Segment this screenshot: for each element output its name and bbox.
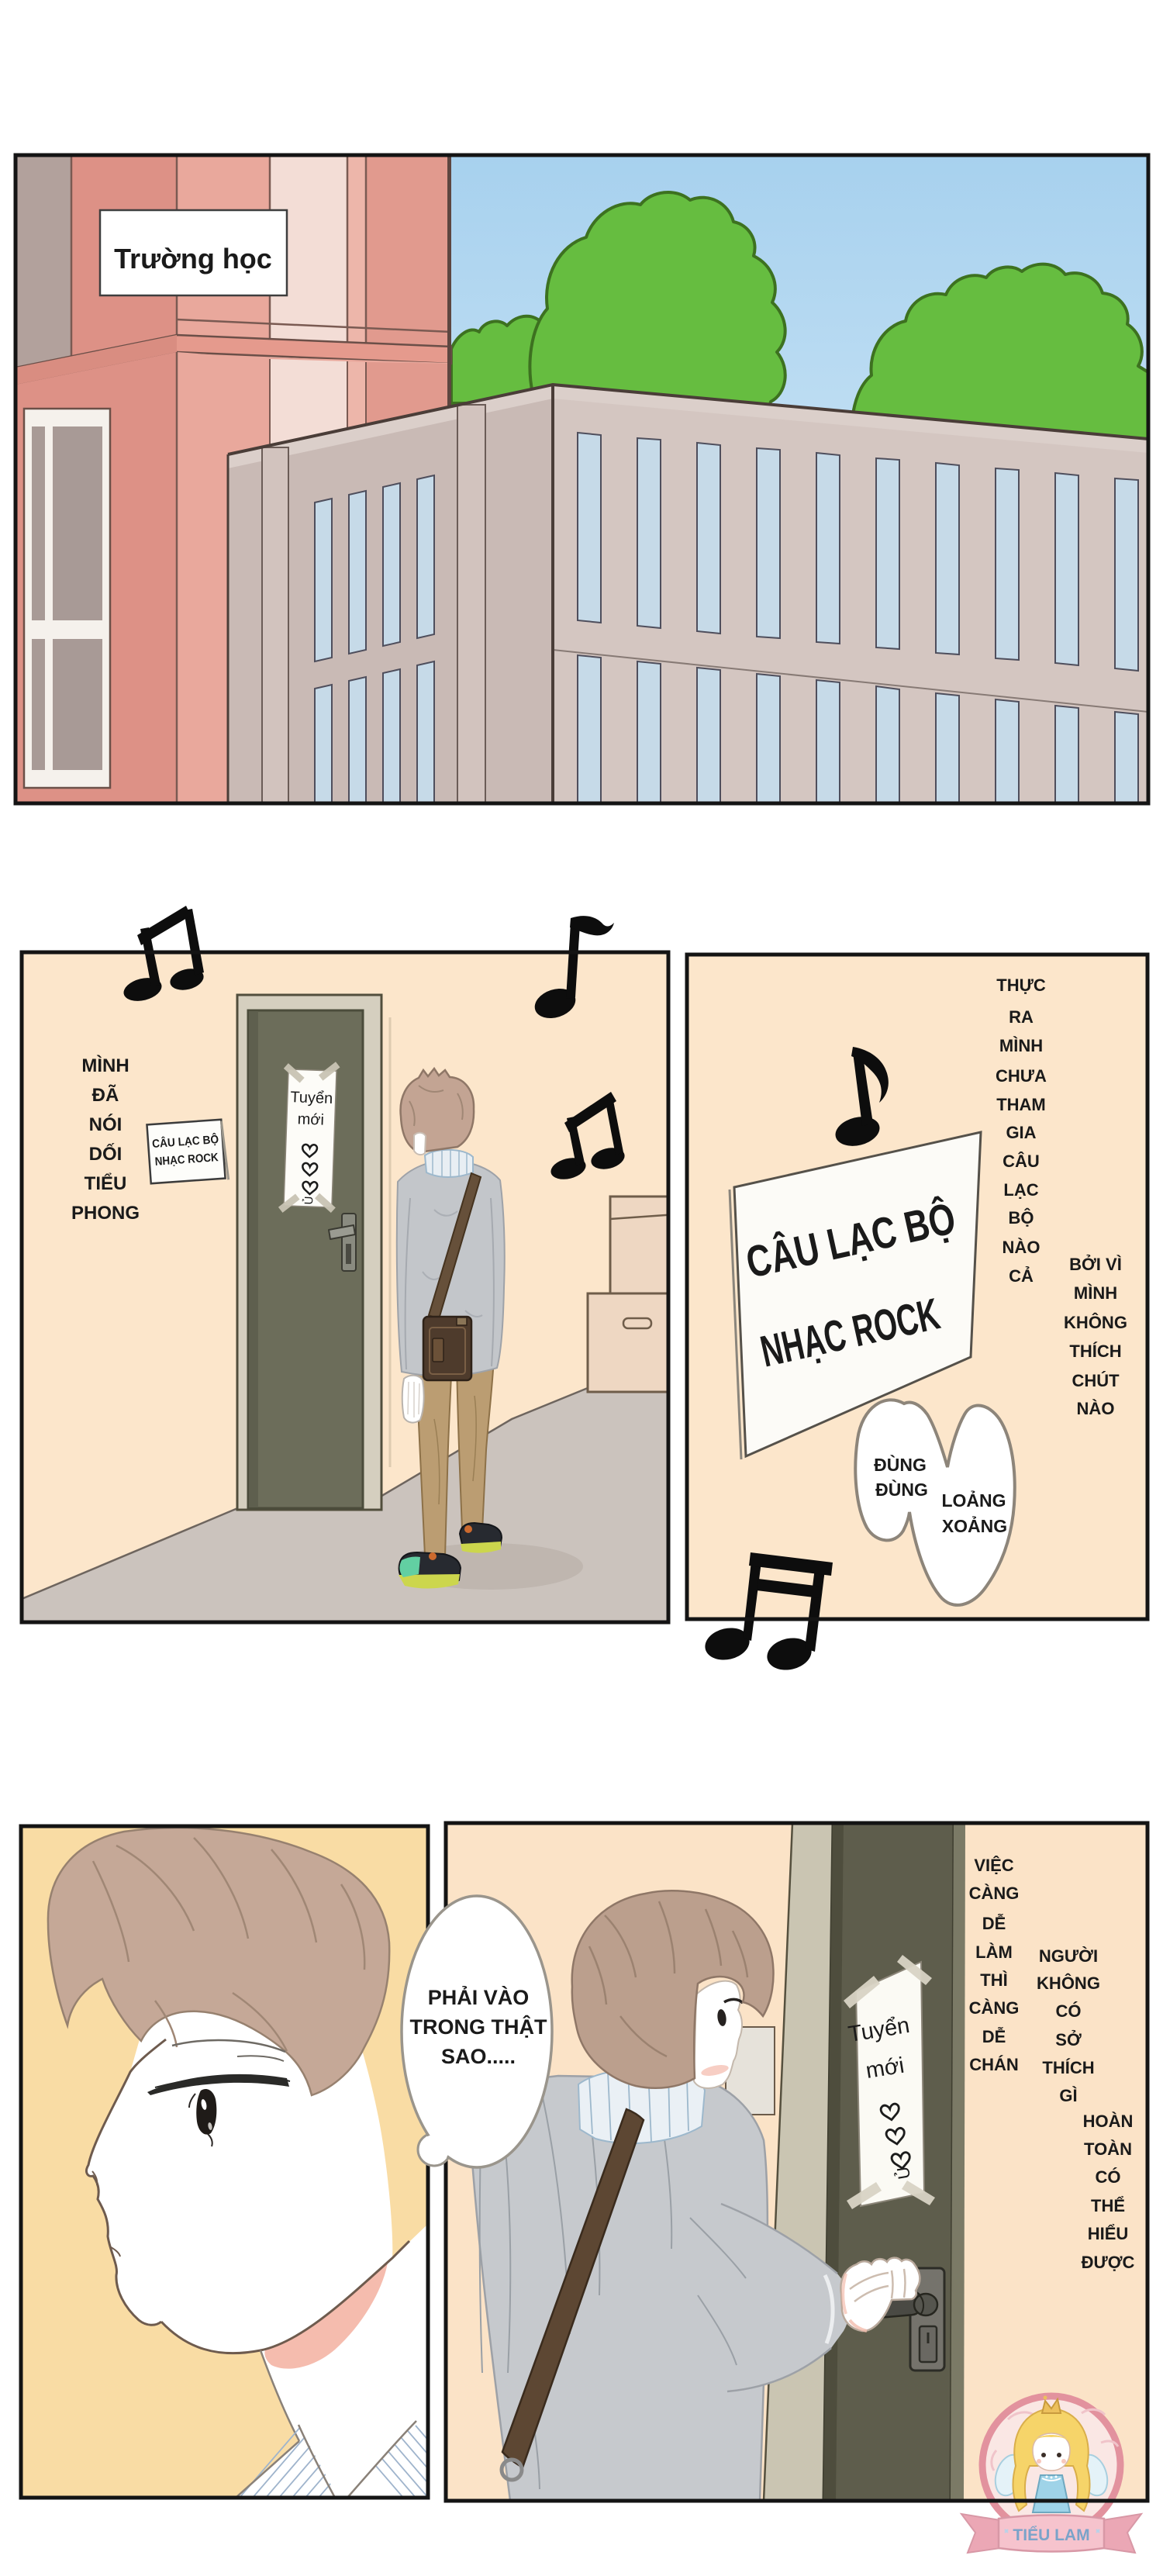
svg-text:THAM: THAM: [996, 1095, 1046, 1114]
svg-text:DỄ: DỄ: [982, 1913, 1006, 1933]
svg-text:TRONG THẬT: TRONG THẬT: [410, 2015, 547, 2039]
svg-text:GÌ: GÌ: [1059, 2086, 1077, 2105]
svg-text:DỄ: DỄ: [982, 2026, 1006, 2046]
svg-text:Ủ: Ủ: [302, 1196, 316, 1204]
svg-text:KHÔNG: KHÔNG: [1037, 1973, 1100, 1993]
svg-text:CHÚT: CHÚT: [1072, 1371, 1120, 1390]
svg-text:RA: RA: [1009, 1007, 1034, 1027]
svg-text:NÀO: NÀO: [1077, 1399, 1115, 1418]
svg-text:MÌNH: MÌNH: [999, 1036, 1043, 1055]
svg-text:CÂU: CÂU: [1003, 1152, 1040, 1171]
svg-text:ĐÃ: ĐÃ: [92, 1084, 119, 1106]
svg-text:SỞ: SỞ: [1055, 2030, 1082, 2049]
svg-text:LOẢNG: LOẢNG: [941, 1489, 1006, 1511]
svg-text:NÀO: NÀO: [1003, 1238, 1040, 1257]
svg-text:CÀNG: CÀNG: [969, 1884, 1020, 1903]
svg-text:THÍCH: THÍCH: [1069, 1342, 1121, 1361]
svg-text:BỞI VÌ: BỞI VÌ: [1069, 1255, 1122, 1274]
svg-text:PHONG: PHONG: [71, 1203, 140, 1224]
svg-text:THÌ: THÌ: [980, 1970, 1007, 1990]
svg-text:MÌNH: MÌNH: [81, 1055, 129, 1076]
svg-text:ĐÙNG: ĐÙNG: [875, 1479, 928, 1500]
svg-text:MÌNH: MÌNH: [1074, 1283, 1117, 1303]
svg-text:KHÔNG: KHÔNG: [1064, 1313, 1127, 1332]
svg-text:THỂ: THỂ: [1091, 2196, 1125, 2215]
svg-text:ĐƯỢC: ĐƯỢC: [1082, 2253, 1135, 2272]
svg-text:BỘ: BỘ: [1009, 1208, 1034, 1228]
svg-text:Trường học: Trường học: [114, 243, 272, 275]
svg-text:HIỂU: HIỂU: [1088, 2224, 1129, 2243]
svg-text:THÍCH: THÍCH: [1042, 2058, 1094, 2077]
svg-text:XOẢNG: XOẢNG: [942, 1514, 1007, 1536]
svg-text:LÀM: LÀM: [975, 1942, 1013, 1962]
svg-text:SAO.....: SAO.....: [441, 2045, 516, 2068]
svg-text:VIỆC: VIỆC: [974, 1856, 1013, 1875]
svg-text:CÓ: CÓ: [1096, 2167, 1121, 2187]
svg-text:HOÀN: HOÀN: [1083, 2112, 1134, 2131]
svg-text:NGƯỜI: NGƯỜI: [1039, 1946, 1098, 1966]
svg-text:PHẢI VÀO: PHẢI VÀO: [428, 1984, 530, 2009]
svg-text:CÀNG: CÀNG: [969, 1998, 1020, 2018]
svg-text:GIA: GIA: [1006, 1123, 1036, 1142]
svg-text:CÓ: CÓ: [1056, 2001, 1082, 2021]
svg-text:NÓI: NÓI: [89, 1114, 123, 1135]
svg-text:LẠC: LẠC: [1003, 1180, 1038, 1200]
svg-text:Tuyển: Tuyển: [290, 1089, 333, 1107]
svg-text:DỐI: DỐI: [89, 1143, 123, 1165]
svg-text:CHƯA: CHƯA: [996, 1066, 1047, 1086]
svg-text:CẢ: CẢ: [1009, 1266, 1034, 1286]
svg-text:TIỂU: TIỂU: [85, 1172, 127, 1194]
svg-text:TIỂU LAM: TIỂU LAM: [1013, 2526, 1089, 2544]
svg-text:ĐÙNG: ĐÙNG: [874, 1454, 927, 1475]
svg-text:CHÁN: CHÁN: [969, 2055, 1019, 2074]
svg-text:mới: mới: [297, 1110, 324, 1128]
svg-text:TOÀN: TOÀN: [1084, 2139, 1132, 2159]
svg-text:THỰC: THỰC: [996, 975, 1046, 995]
